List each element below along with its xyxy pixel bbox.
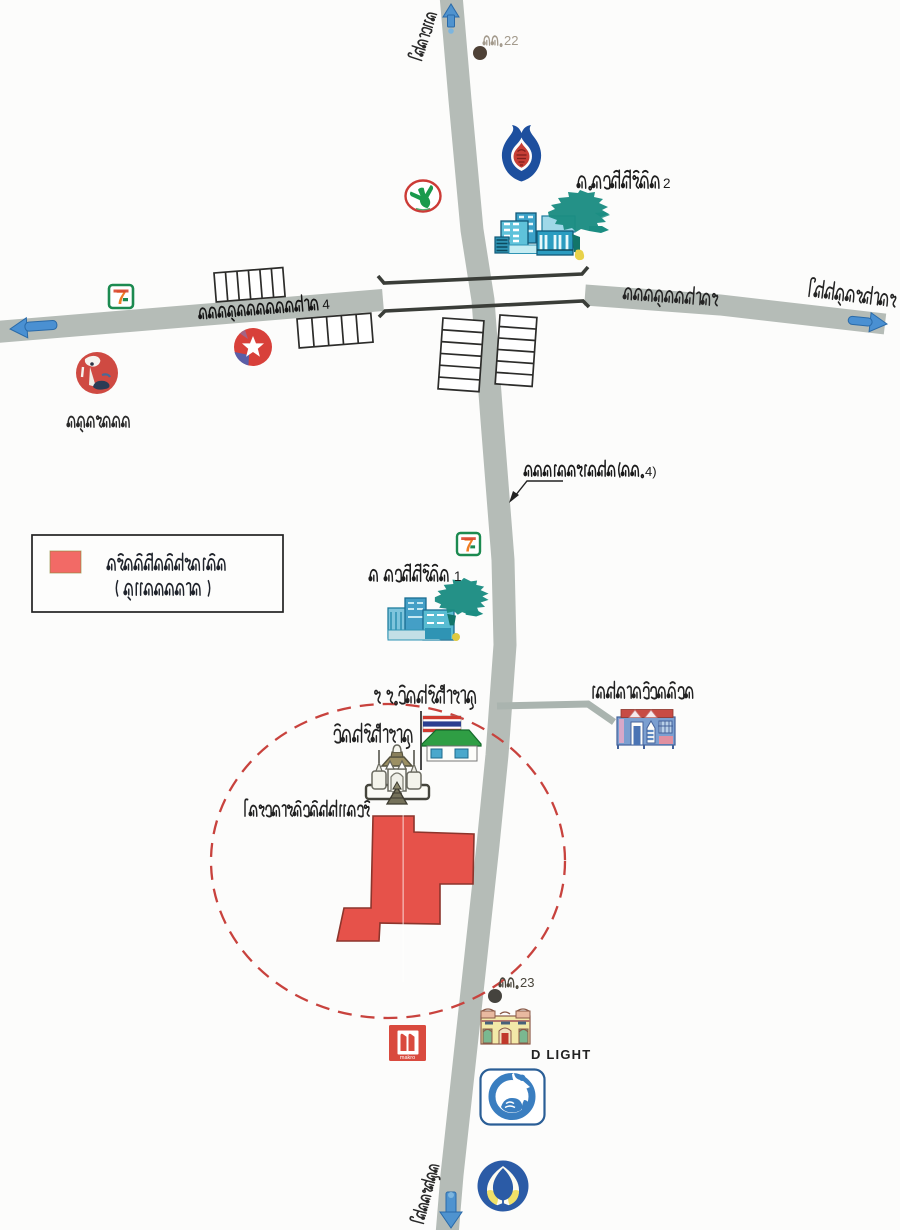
svg-text:22: 22 (504, 33, 518, 48)
svg-text:2: 2 (663, 176, 671, 191)
svg-text:makro: makro (400, 1055, 415, 1061)
svg-text:D LIGHT: D LIGHT (531, 1047, 591, 1062)
svg-text:1: 1 (454, 569, 462, 584)
svg-text:4): 4) (645, 464, 657, 479)
svg-text:23: 23 (520, 975, 534, 990)
